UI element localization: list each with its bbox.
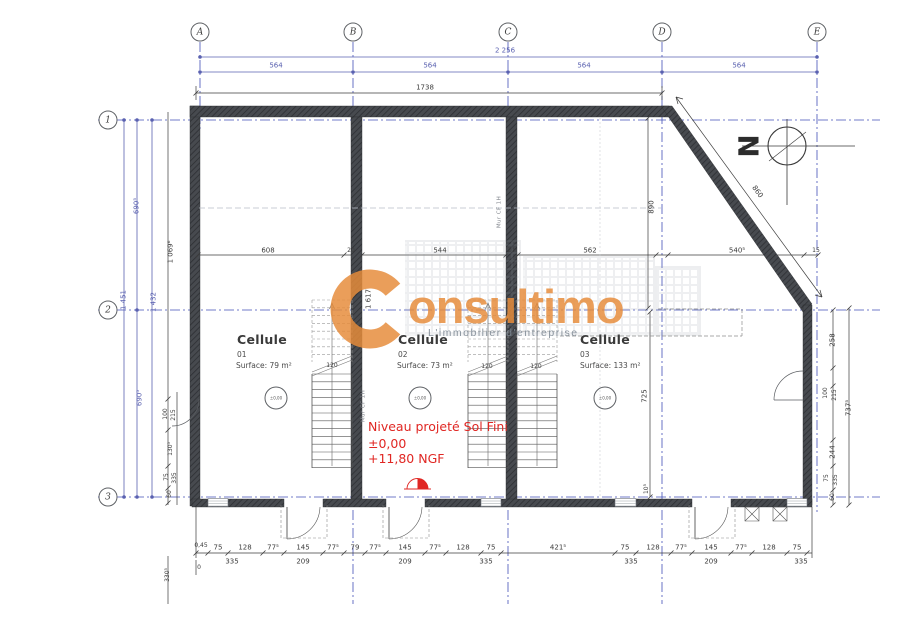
dim-bottom: 128: [456, 545, 469, 552]
dim-mid: 544: [433, 248, 446, 255]
dim-bottom: 145: [704, 545, 717, 552]
dim-bottom: 77⁵: [429, 545, 441, 552]
dim-left-offset: 0,45: [194, 543, 207, 549]
dim-mid: 608: [261, 248, 274, 255]
dim-mid: 20: [507, 248, 515, 254]
dim-bottom: 77⁵: [327, 545, 339, 552]
dim-bottom: 75: [214, 545, 223, 552]
level-value: ±0,00: [270, 396, 282, 401]
level-note-line3: +11,80 NGF: [368, 451, 444, 466]
dim-mid: 15: [812, 248, 820, 254]
grid-bubble-col-a: A: [191, 23, 210, 42]
fire-wall-label: Mur CF 1H: [497, 196, 503, 228]
dim-right: 215: [832, 389, 838, 400]
level-marker: ±0,00: [594, 387, 617, 410]
dim-right: 335: [833, 474, 839, 485]
cell-number: 03: [580, 350, 590, 359]
dim-bottom-sub: 209: [398, 559, 411, 566]
dim-bottom: 77⁵: [675, 545, 687, 552]
grid-label: B: [350, 27, 357, 37]
generated-linework: [122, 55, 851, 555]
level-note-line2: ±0,00: [368, 436, 406, 451]
grid-bubble-col-c: C: [499, 23, 518, 42]
dim-bottom: 75: [793, 545, 802, 552]
dim-left-door-height: 215: [171, 409, 177, 420]
dim-left-lower: 690⁵: [137, 390, 144, 406]
grid-label: 3: [105, 492, 111, 502]
level-marker: ±0,00: [265, 387, 288, 410]
dim-bottom-sub: 335: [794, 559, 807, 566]
dim-bottom: 128: [762, 545, 775, 552]
dim-bottom: 77⁵: [267, 545, 279, 552]
dim-mid: 20: [347, 248, 355, 254]
dim-bottom: 75: [487, 545, 496, 552]
dim-left-chain: 130⁵: [168, 442, 174, 456]
dim-left-chain: 75: [164, 473, 170, 481]
dim-left-upper: 690⁵: [134, 198, 141, 214]
cell-number: 02: [398, 350, 408, 359]
level-marker-symbol: [404, 479, 431, 490]
dim-left-interior: 1 069⁶: [168, 241, 175, 264]
grid-lines: [98, 42, 880, 604]
dim-left-inner-total: 1 432: [151, 292, 158, 312]
dim-bottom: 145: [398, 545, 411, 552]
dim-left-chain: 335: [172, 472, 178, 483]
dim-left-chain: 60: [167, 490, 173, 498]
dim-bottom: 421⁵: [550, 545, 566, 552]
dim-vertical-lower: 725: [642, 389, 649, 402]
grid-bubble-col-e: E: [808, 23, 827, 42]
dim-left-total: 1 451: [121, 290, 128, 310]
cell-title: Cellule: [237, 332, 287, 347]
grid-label: E: [814, 27, 821, 37]
dim-top-segment: 564: [269, 63, 282, 70]
dim-left-zero: 0: [197, 565, 201, 571]
dim-top-segment: 564: [423, 63, 436, 70]
dim-left-door-width: 100: [163, 408, 169, 419]
grid-bubble-row-1: 1: [99, 111, 118, 130]
grid-label: 2: [105, 305, 111, 315]
dim-bottom-sub: 209: [296, 559, 309, 566]
floor-plan-canvas: A B C D E 1 2 3 2 256 564 564 564 564 17…: [0, 0, 900, 628]
dim-right: 75: [824, 474, 830, 482]
dim-top-segment: 564: [732, 63, 745, 70]
dim-bottom-sub: 335: [479, 559, 492, 566]
dim-bottom: 145: [296, 545, 309, 552]
stair-width-label: 120: [530, 364, 541, 370]
cell-number: 01: [237, 350, 247, 359]
grid-label: A: [197, 27, 204, 37]
cell-title: Cellule: [398, 332, 448, 347]
dim-top-building: 1738: [416, 85, 434, 92]
grid-label: C: [505, 27, 512, 37]
walls: [190, 106, 812, 507]
dim-right-total: 737⁵: [846, 400, 853, 416]
dim-bottom: 128: [646, 545, 659, 552]
level-value: ±0,00: [414, 396, 426, 401]
dim-right: 60: [830, 493, 836, 501]
dim-top-overall: 2 256: [495, 48, 515, 55]
grid-bubble-col-b: B: [344, 23, 363, 42]
dim-mid: 562: [583, 248, 596, 255]
level-note-line1: Niveau projeté Sol Fini: [368, 419, 508, 434]
cell-surface: Surface: 133 m²: [580, 361, 641, 370]
cell-title: Cellule: [580, 332, 630, 347]
dim-top-segment: 564: [577, 63, 590, 70]
dim-right: 100: [823, 387, 829, 398]
grid-bubble-col-d: D: [653, 23, 672, 42]
dim-bottom: 128: [238, 545, 251, 552]
dim-bottom: 77⁵: [735, 545, 747, 552]
north-label: N: [732, 134, 765, 157]
cell-surface: Surface: 73 m²: [397, 361, 453, 370]
dim-vertical-upper: 890: [649, 200, 656, 213]
dim-bottom: 77⁵: [369, 545, 381, 552]
stair-width-label: 120: [326, 363, 337, 369]
grid-bubble-row-3: 3: [99, 488, 118, 507]
dim-left-corner: 330⁵: [165, 568, 171, 582]
dim-bottom-sub: 209: [704, 559, 717, 566]
dim-mid: 540⁵: [729, 248, 745, 255]
grid-label: D: [658, 27, 665, 37]
dim-stair-length: 1 617: [366, 289, 373, 309]
plan-linework: [0, 0, 900, 628]
grid-bubble-row-2: 2: [99, 301, 118, 320]
dim-right: 244: [830, 445, 837, 458]
dim-bottom: 79: [351, 545, 360, 552]
dim-bottom: 75: [621, 545, 630, 552]
level-value: ±0,00: [599, 396, 611, 401]
fire-wall-label: Mur CF 1H: [361, 390, 367, 422]
dim-right: 258: [830, 333, 837, 346]
stair-width-label: 120: [481, 364, 492, 370]
cell-surface: Surface: 79 m²: [236, 361, 292, 370]
level-marker: ±0,00: [409, 387, 432, 410]
dim-bottom-sub: 335: [624, 559, 637, 566]
grid-label: 1: [105, 115, 111, 125]
dim-vertical-bottom: 10⁵: [644, 484, 650, 494]
dim-bottom-sub: 335: [225, 559, 238, 566]
